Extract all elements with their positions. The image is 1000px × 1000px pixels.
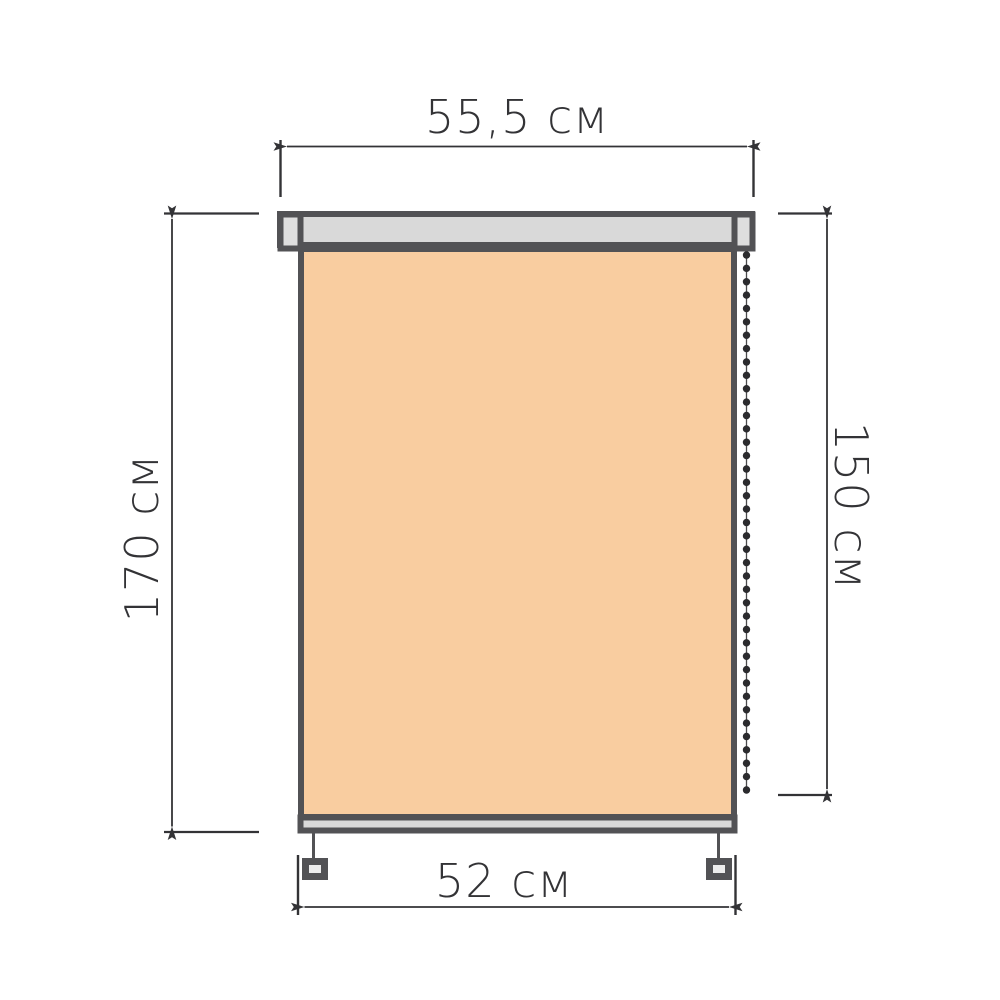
cassette bbox=[280, 214, 753, 249]
chain-bead bbox=[743, 492, 750, 499]
dimension-fabric-height: 150 см bbox=[778, 214, 878, 796]
chain-bead bbox=[743, 653, 750, 660]
chain-bead bbox=[743, 291, 750, 298]
chain-bead bbox=[743, 358, 750, 365]
chain-beads bbox=[743, 251, 750, 793]
dimension-label-fabric-height: 150 см bbox=[824, 422, 878, 590]
chain-bead bbox=[743, 318, 750, 325]
chain-bead bbox=[743, 519, 750, 526]
chain-bead bbox=[743, 760, 750, 767]
chain-bead bbox=[743, 666, 750, 673]
chain-bead bbox=[743, 532, 750, 539]
chain-bead bbox=[743, 679, 750, 686]
dimension-cassette-width: 55,5 см bbox=[281, 90, 754, 197]
chain-bead bbox=[743, 693, 750, 700]
chain-bead bbox=[743, 733, 750, 740]
cassette-bar bbox=[280, 214, 752, 245]
dimension-fabric-width: 52 см bbox=[298, 854, 736, 915]
chain-bead bbox=[743, 626, 750, 633]
chain-bead bbox=[743, 345, 750, 352]
chain-bead bbox=[743, 385, 750, 392]
mount-bracket-right bbox=[710, 862, 729, 877]
chain-bead bbox=[743, 505, 750, 512]
chain-bead bbox=[743, 572, 750, 579]
chain-bead bbox=[743, 599, 750, 606]
dimension-total-height: 170 см bbox=[115, 214, 259, 833]
bottom-rail bbox=[301, 818, 735, 831]
chain-bead bbox=[743, 265, 750, 272]
chain-bead bbox=[743, 786, 750, 793]
chain-bead bbox=[743, 746, 750, 753]
chain-bead bbox=[743, 465, 750, 472]
chain-bead bbox=[743, 412, 750, 419]
cassette-cap-left bbox=[281, 215, 301, 249]
chain-bead bbox=[743, 278, 750, 285]
chain bbox=[743, 251, 750, 793]
chain-bead bbox=[743, 425, 750, 432]
chain-bead bbox=[743, 559, 750, 566]
chain-bead bbox=[743, 398, 750, 405]
chain-bead bbox=[743, 439, 750, 446]
chain-bead bbox=[743, 305, 750, 312]
mount-bracket-left bbox=[306, 862, 325, 877]
dimension-label-total-height: 170 см bbox=[115, 454, 169, 622]
dimension-label-cassette-width: 55,5 см bbox=[425, 90, 609, 144]
chain-bead bbox=[743, 332, 750, 339]
cassette-cap-right bbox=[735, 215, 753, 249]
chain-bead bbox=[743, 639, 750, 646]
chain-bead bbox=[743, 706, 750, 713]
roller-blind-diagram: 55,5 см 170 см 150 см 52 см bbox=[0, 0, 1000, 1000]
chain-bead bbox=[743, 372, 750, 379]
chain-bead bbox=[743, 546, 750, 553]
chain-bead bbox=[743, 773, 750, 780]
fabric-panel bbox=[301, 249, 734, 817]
dimension-label-fabric-width: 52 см bbox=[435, 854, 573, 908]
chain-bead bbox=[743, 612, 750, 619]
chain-bead bbox=[743, 586, 750, 593]
chain-bead bbox=[743, 479, 750, 486]
chain-bead bbox=[743, 719, 750, 726]
chain-bead bbox=[743, 452, 750, 459]
chain-bead bbox=[743, 251, 750, 258]
